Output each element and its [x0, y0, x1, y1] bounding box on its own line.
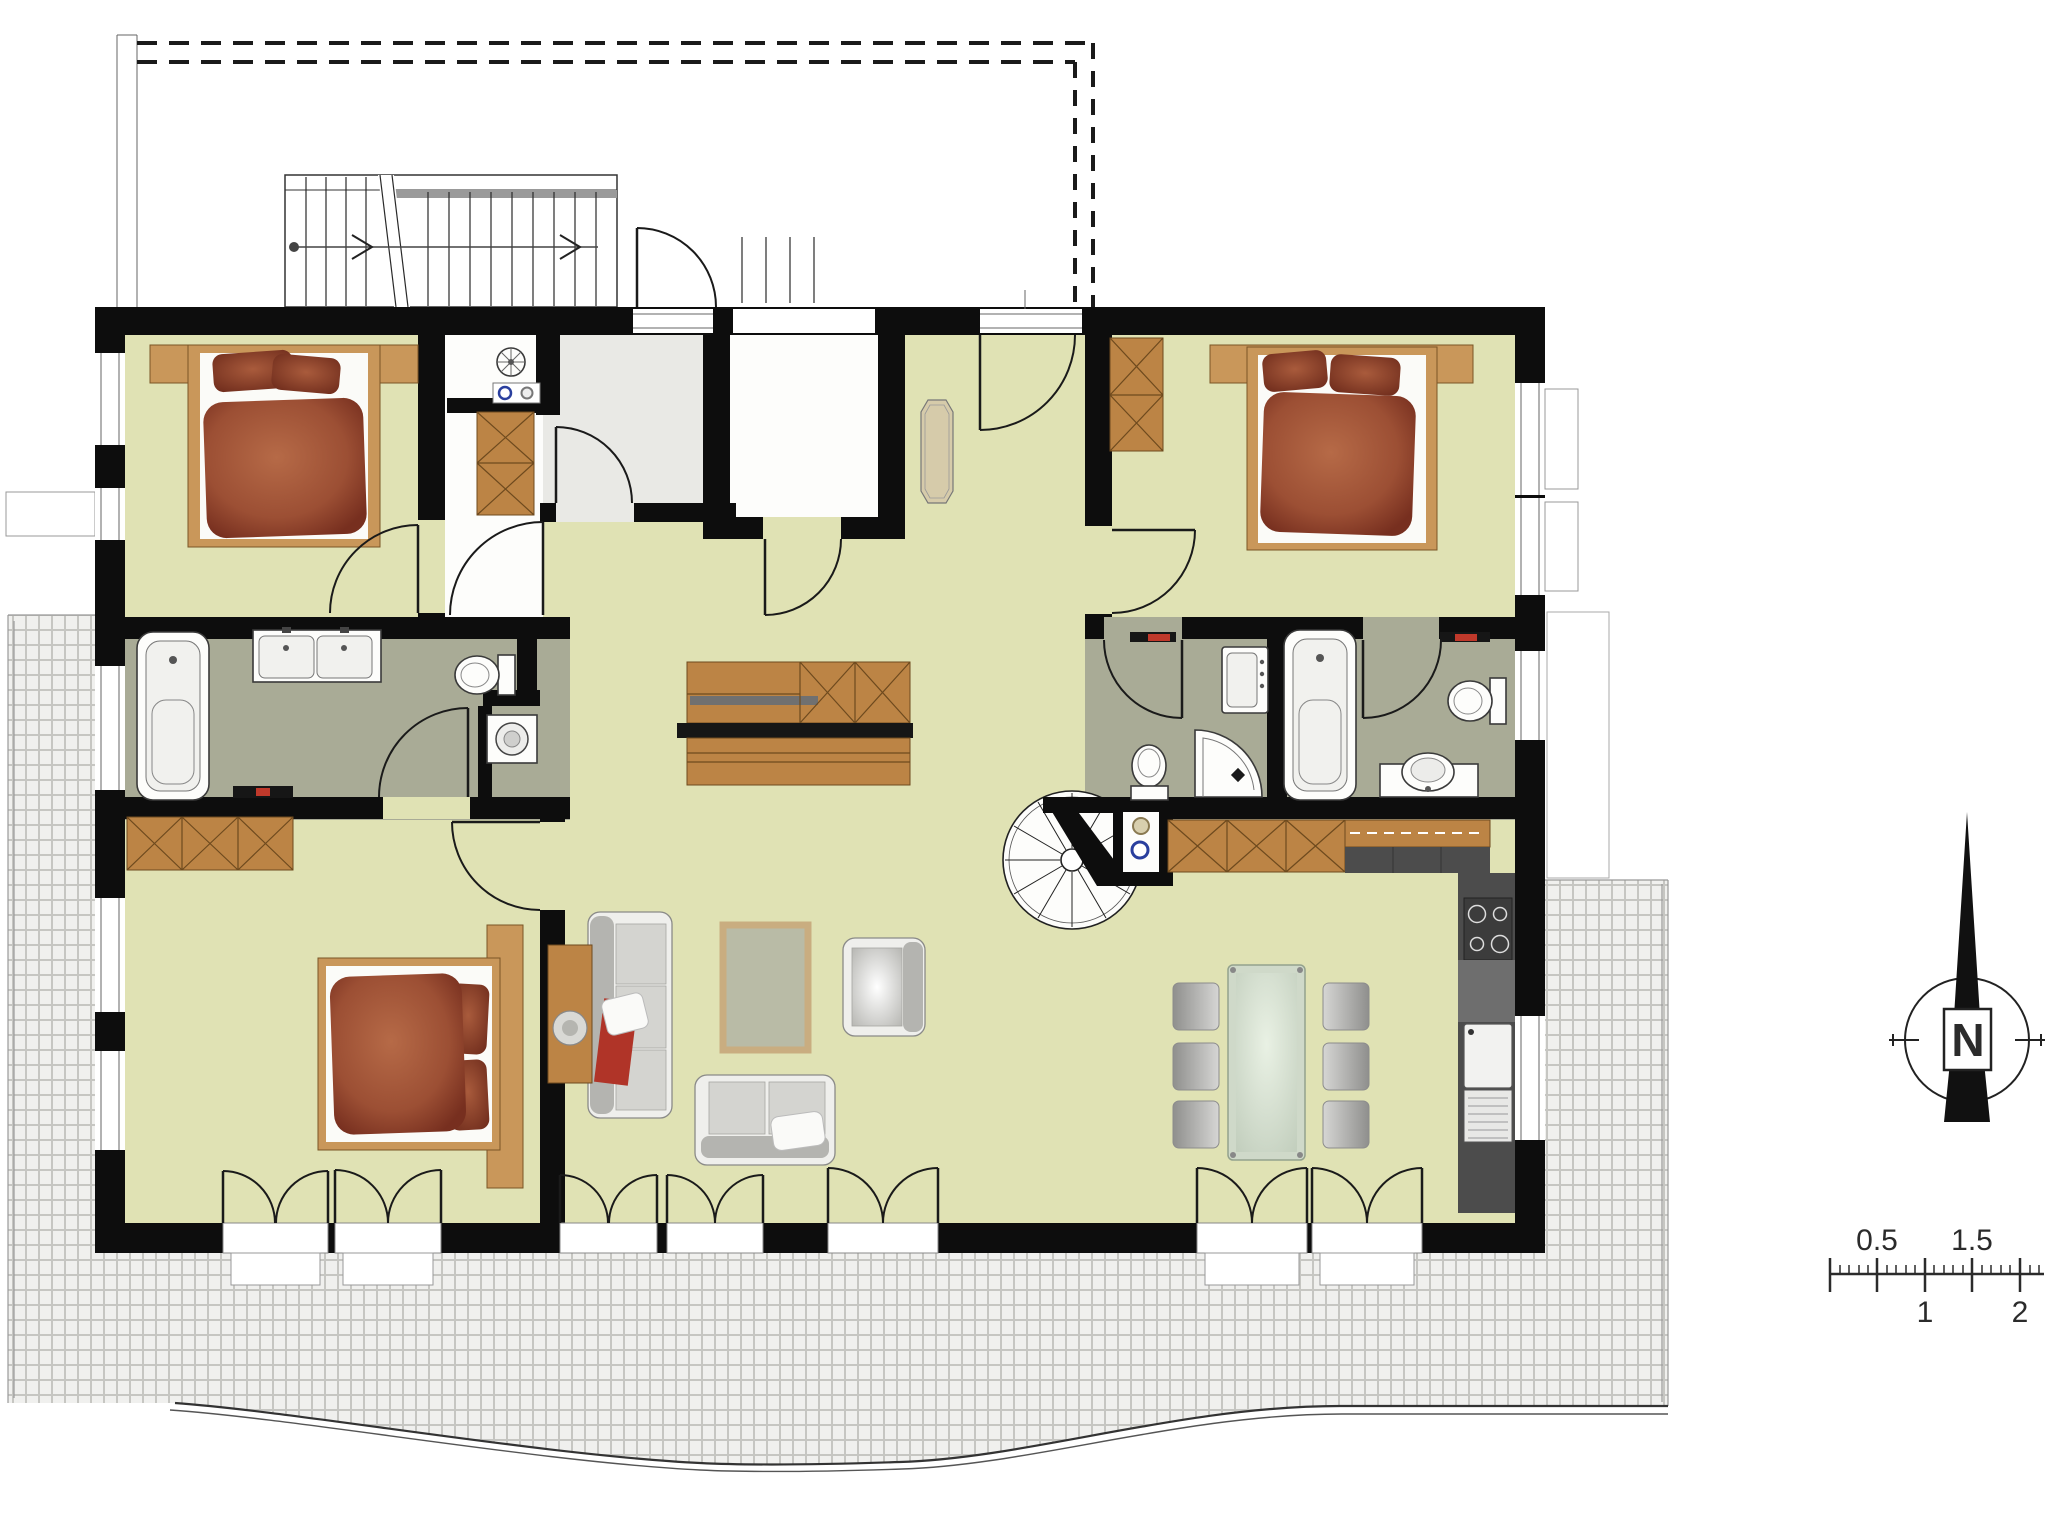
console-table-icon [921, 400, 953, 503]
opening-bath-main [1363, 617, 1439, 639]
openings-top-wall [633, 290, 1082, 333]
door-slab [231, 1253, 320, 1285]
entry-porch-left [6, 492, 95, 536]
bathtub-icon [137, 632, 209, 800]
scale-minor-ticks [1840, 1265, 2039, 1274]
toilet-icon [1131, 745, 1168, 800]
compass: N [1889, 812, 2045, 1122]
scale-label-2: 2 [2012, 1296, 2029, 1329]
dining-table-icon [1228, 965, 1305, 1160]
wardrobe-icon [477, 412, 534, 515]
north-arrow-icon [1944, 812, 1990, 1122]
stair-start-dot [289, 242, 299, 252]
opening-bedroom1 [418, 520, 445, 613]
roof-dashed-top [137, 43, 1093, 62]
loveseat-icon [695, 1075, 835, 1165]
scale-label-1: 1 [1917, 1296, 1934, 1329]
door-swing-icon [637, 228, 716, 307]
chair-icon [1173, 1101, 1219, 1148]
door-slab [1205, 1253, 1299, 1285]
coffee-table-icon [548, 945, 592, 1083]
staircase-icon [285, 175, 814, 307]
bathtub-icon [1284, 630, 1356, 800]
floor-plan-drawing: N 0.5 1.5 1 2 [0, 0, 2048, 1536]
valve-icon [1132, 842, 1148, 858]
hookup-gray [522, 388, 533, 399]
accent-mark [1148, 634, 1170, 641]
pillow [1261, 349, 1328, 392]
chair-icon [1173, 1043, 1219, 1090]
white-pillow [770, 1111, 826, 1152]
rug-icon [723, 925, 808, 1050]
double-bed-icon [329, 973, 466, 1136]
pillow [271, 353, 342, 395]
stairwell-shaft-floor [730, 335, 878, 517]
scale-label-1-5: 1.5 [1951, 1224, 1993, 1257]
sideboard-icon [677, 662, 913, 785]
toilet-icon [455, 655, 515, 695]
washing-machine-icon [487, 715, 537, 763]
armchair-icon [843, 938, 925, 1036]
accent-mark [256, 788, 270, 796]
stairwell-treads [742, 237, 814, 303]
door-slab [343, 1253, 433, 1285]
bedroom-top-left [150, 345, 418, 547]
roof-dashed-right [1075, 43, 1093, 307]
opening-shaft [763, 517, 841, 539]
window-sill [1545, 502, 1578, 591]
opening-bedroom3 [540, 822, 565, 910]
opening-bedroom2 [1085, 526, 1112, 614]
chair-icon [1323, 983, 1369, 1030]
window-sill [1545, 389, 1578, 489]
scale-ruler-icon: 0.5 1.5 1 2 [1830, 1224, 2044, 1329]
wardrobe-icon [1110, 338, 1163, 451]
toilet-icon [1448, 678, 1506, 724]
stair-top-band [383, 190, 617, 198]
roof-solid-edge [117, 35, 137, 307]
kitchen-sink-icon [1464, 1024, 1512, 1142]
meter-icon [1133, 818, 1149, 834]
double-bed-icon [1260, 391, 1417, 536]
chair-icon [1323, 1043, 1369, 1090]
scale-label-0-5: 0.5 [1856, 1224, 1898, 1257]
chair-icon [1323, 1101, 1369, 1148]
wall-toilet-stub [517, 620, 537, 690]
hookup-blue [499, 387, 511, 399]
double-bed-icon [203, 397, 368, 539]
opening-vestibule [556, 503, 634, 522]
wall-shaft-east [878, 335, 905, 517]
compass-north-label: N [1951, 1014, 1984, 1066]
opening-bath-left [383, 797, 470, 819]
chair-icon [1173, 983, 1219, 1030]
vestibule-floor [543, 335, 703, 503]
sofa-icon [588, 912, 672, 1118]
accent-mark [1455, 634, 1477, 641]
kitchen-wardrobe [1168, 820, 1345, 872]
wall-shaft-west [703, 335, 730, 517]
double-sink-icon [253, 627, 381, 682]
roof-strip-right [1547, 612, 1609, 878]
stove-icon [1464, 898, 1512, 960]
door-slab [1320, 1253, 1414, 1285]
pillow [1329, 354, 1401, 397]
floor-plan-page: N 0.5 1.5 1 2 [0, 0, 2048, 1536]
wardrobe-icon [127, 817, 293, 870]
wall-sink-cabinet [1222, 647, 1268, 713]
